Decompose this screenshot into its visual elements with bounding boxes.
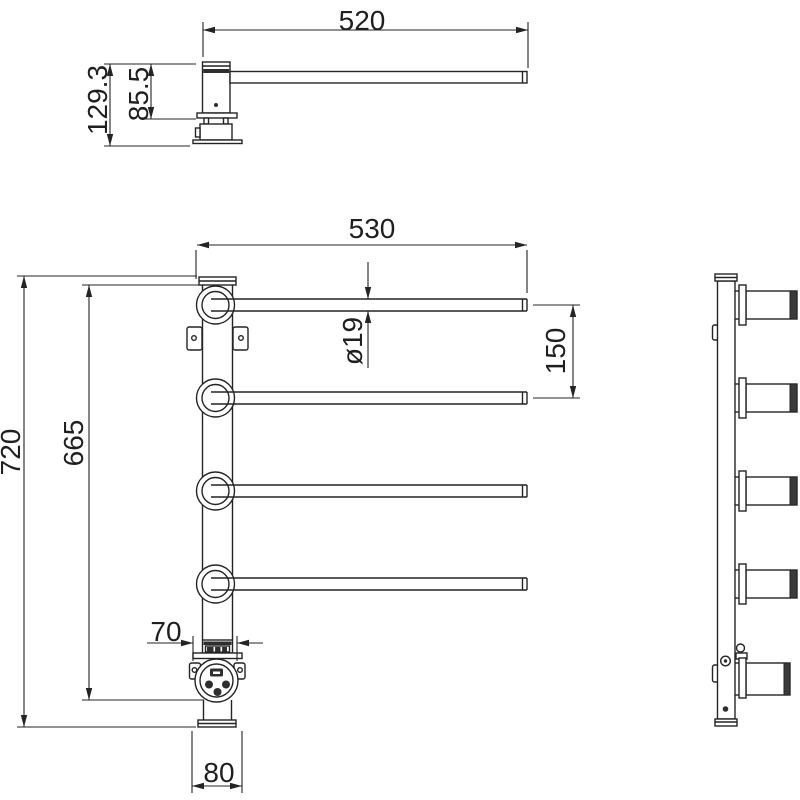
dimension-bar-diameter: ø19 [337,262,371,368]
dimension-bar-length: 530 [196,213,527,293]
towel-bar-2 [211,392,527,404]
bar-stubs [735,285,797,604]
dimension-arm-body-height: 85.5 [123,64,196,121]
dim-label-720: 720 [0,429,26,476]
towel-bar-4 [211,578,527,590]
connector-right-pin [222,681,230,689]
dim-label-665: 665 [58,420,89,467]
connector-left-pin [205,681,213,689]
dim-label-150: 150 [540,328,571,375]
dimension-arm-length: 520 [203,5,528,68]
connector-bottom-pin [214,688,222,696]
dim-label-80: 80 [203,757,234,788]
dim-label-85-5: 85.5 [123,67,154,122]
arm-post [203,62,231,113]
side-view [713,274,798,726]
dim-label-530: 530 [349,213,396,244]
bar-stub-3 [735,471,797,511]
wall-bracket [187,327,248,350]
towel-bars [211,299,527,590]
wall-plate [715,274,737,726]
dimension-overall-height: 720 [0,276,197,727]
bar-stub-4 [735,564,797,604]
screw-dot [723,706,729,712]
towel-bar-3 [211,485,527,497]
cable-hook [737,644,745,652]
dimension-bar-spacing: 150 [533,305,580,398]
connector-stub [735,644,790,698]
towel-rail-drawing: 520 129.3 85.5 [0,0,800,800]
top-view: 520 129.3 85.5 [82,5,528,146]
dim-label-520: 520 [339,5,386,36]
dim-label-70: 70 [150,616,181,647]
technical-drawing-canvas: 520 129.3 85.5 [0,0,800,800]
front-view: 530 ø19 150 720 [0,213,580,793]
bar-stub-2 [735,378,797,418]
dimension-base-width: 80 [192,731,242,793]
arm-bar [230,72,527,84]
towel-bar-1 [211,299,527,311]
arm-base [193,113,242,144]
bar-stub-1 [735,285,797,325]
dim-label-129-3: 129.3 [82,65,113,135]
dim-label-diameter-19: ø19 [337,317,368,365]
